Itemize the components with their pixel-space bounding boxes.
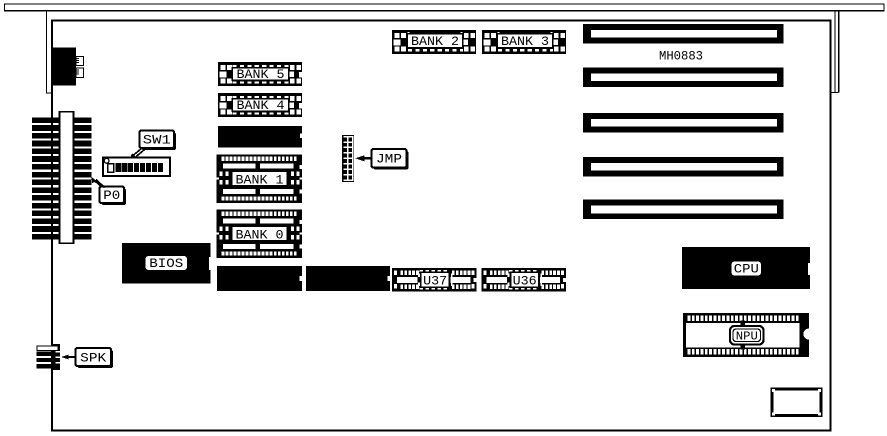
- svg-text:SPK: SPK: [80, 350, 106, 365]
- svg-text:BANK 1: BANK 1: [236, 173, 284, 187]
- svg-text:BANK 0: BANK 0: [236, 228, 284, 242]
- svg-text:CPU: CPU: [734, 262, 759, 277]
- svg-text:JMP: JMP: [376, 152, 402, 167]
- svg-text:BIOS: BIOS: [149, 257, 183, 271]
- svg-text:BANK 2: BANK 2: [411, 35, 459, 49]
- svg-text:BANK 5: BANK 5: [237, 68, 285, 82]
- svg-text:U37: U37: [423, 275, 447, 289]
- svg-text:NPU: NPU: [736, 330, 758, 344]
- svg-text:P0: P0: [103, 188, 120, 203]
- svg-text:SW1: SW1: [143, 133, 171, 148]
- svg-text:U36: U36: [513, 275, 537, 289]
- svg-text:BANK 3: BANK 3: [501, 35, 549, 49]
- svg-text:MH0883: MH0883: [659, 50, 703, 64]
- svg-text:BANK 4: BANK 4: [237, 99, 285, 113]
